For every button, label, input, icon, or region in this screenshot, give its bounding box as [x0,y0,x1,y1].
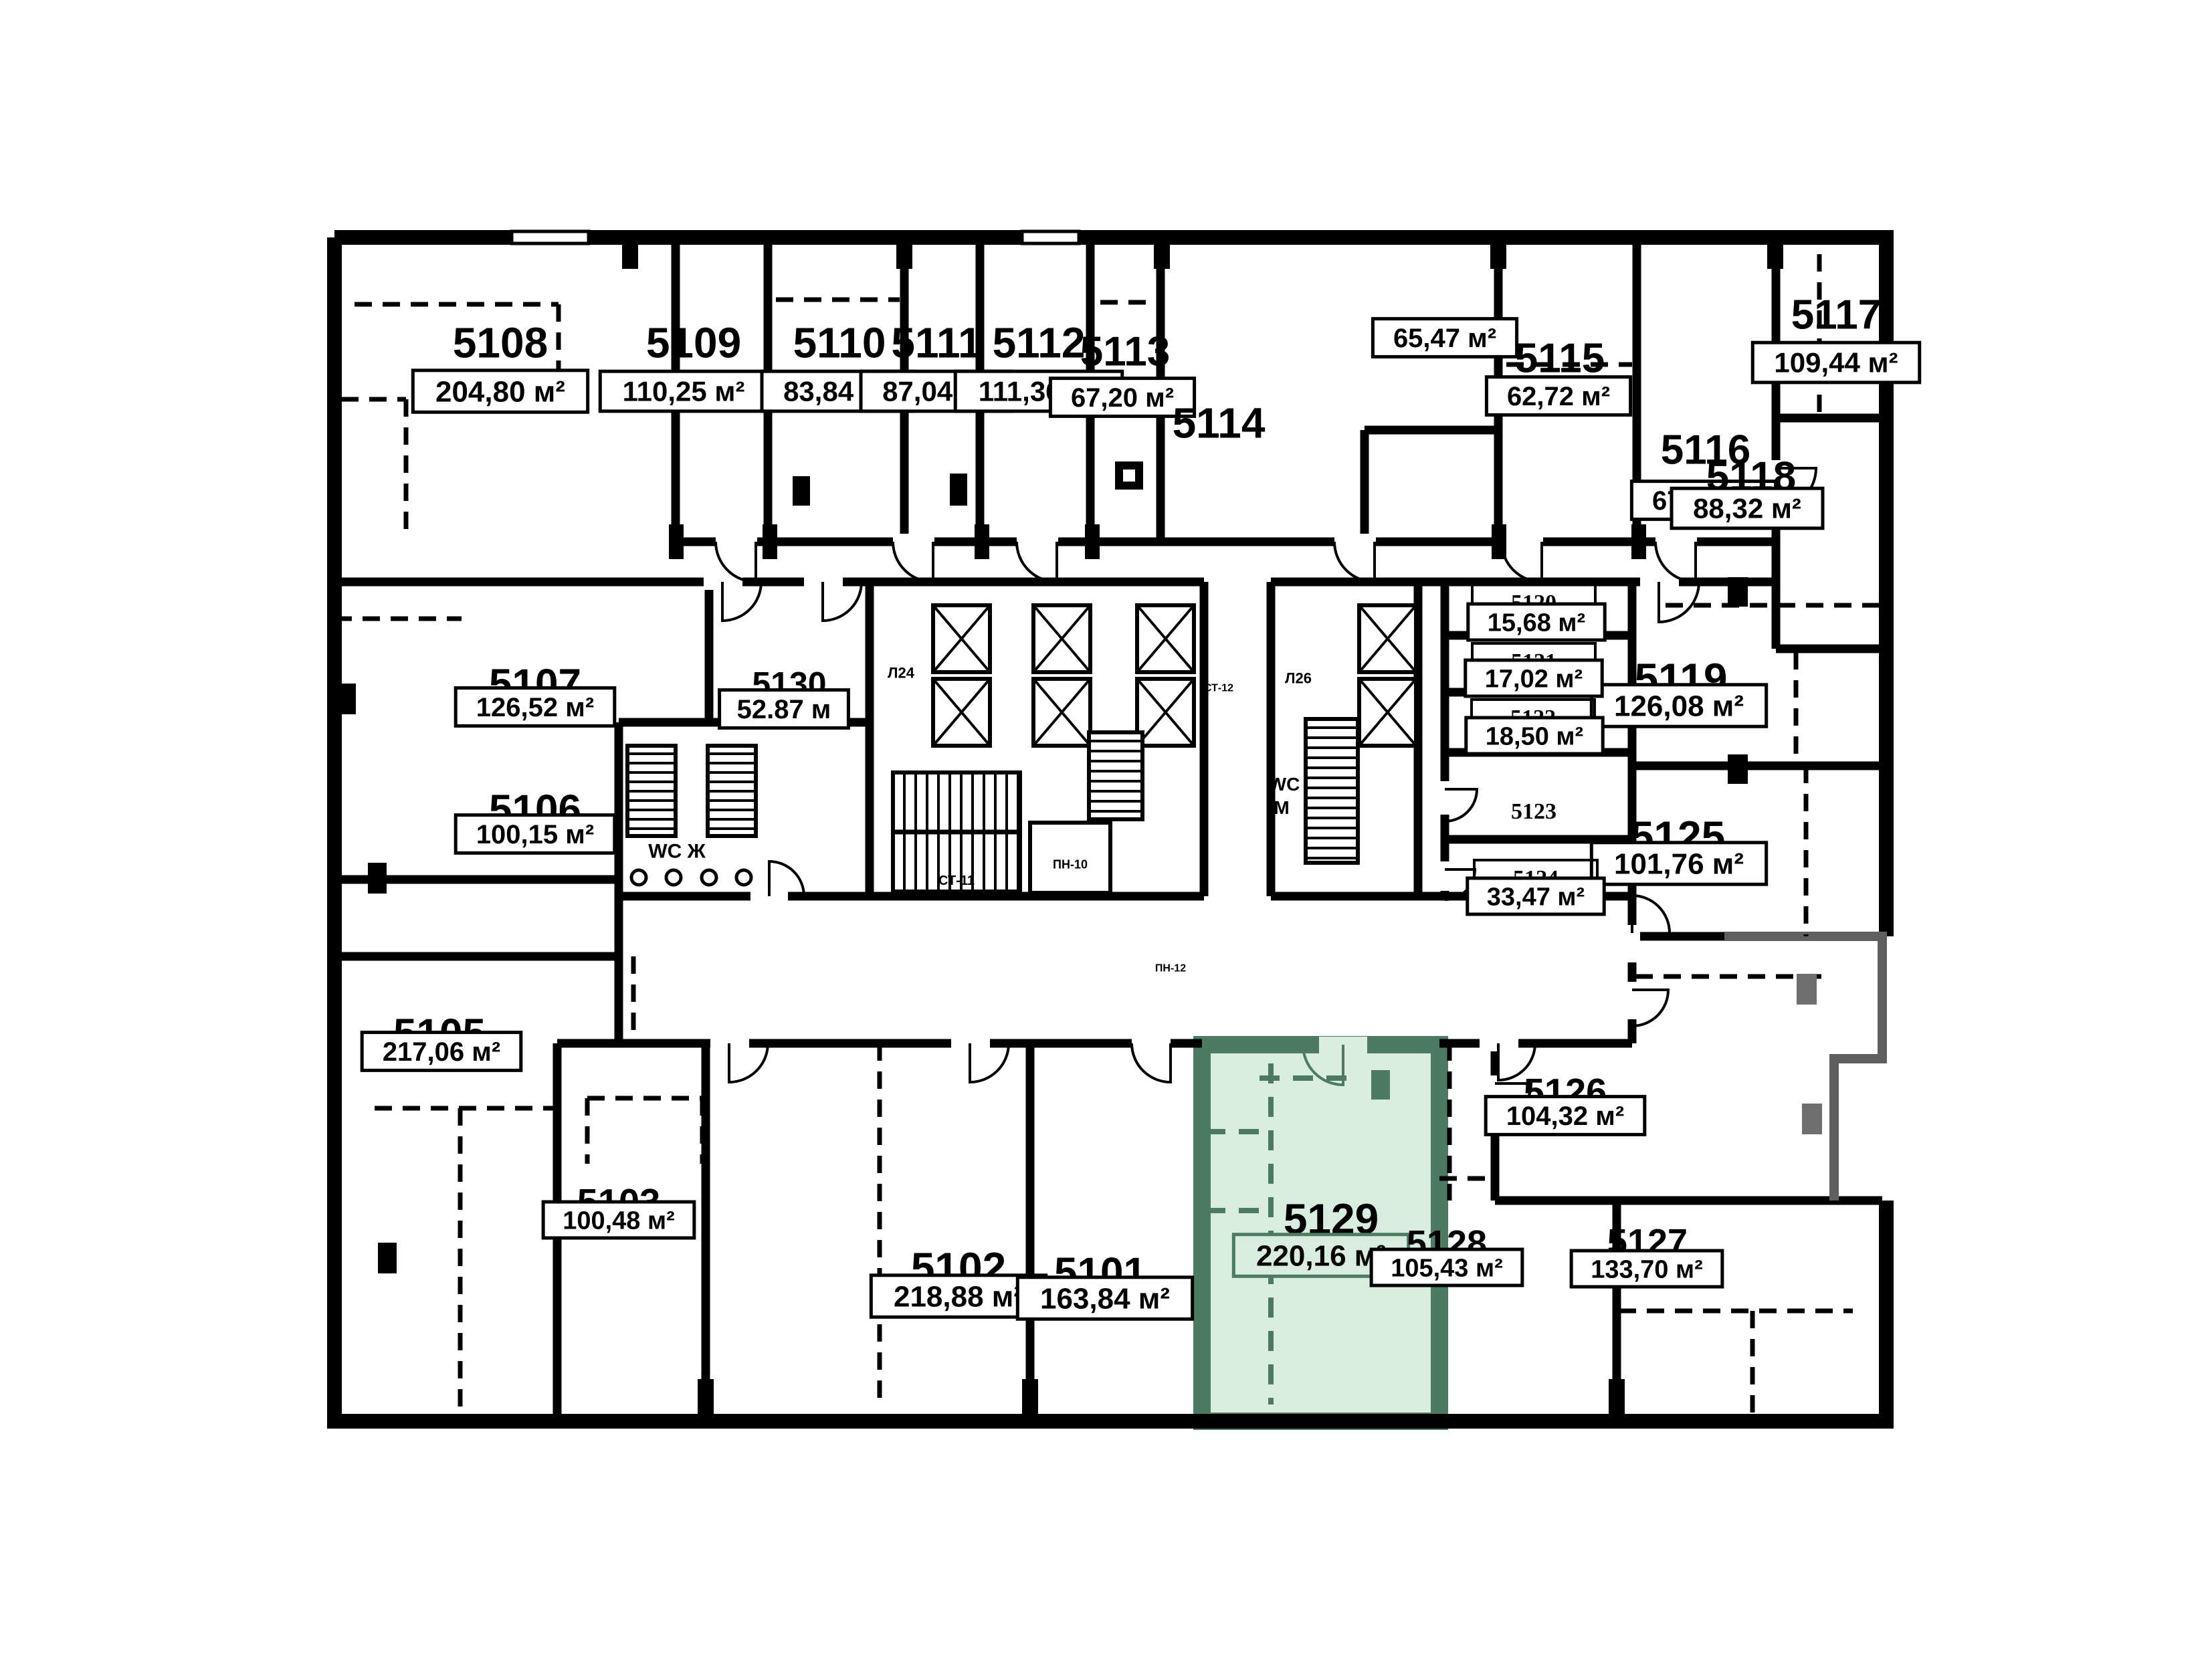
room-area: 126,52 м² [476,693,594,722]
room-area: 133,70 м² [1591,1255,1703,1283]
room-area: 204,80 м² [435,375,565,408]
room-area: 110,25 м² [623,376,745,407]
elevator-shaft-icon [1359,605,1416,672]
core-label-6: СТ-12 [1204,683,1233,694]
room-area: 218,88 м² [894,1280,1023,1313]
elevator-shaft-icon [1033,605,1090,672]
core-label-3: Л24 [888,665,915,682]
room-area: 163,84 м² [1040,1282,1170,1315]
door-opening [1437,861,1453,891]
window-mark [512,231,589,243]
door-opening [1334,534,1376,550]
room-area: 67,20 м² [1071,383,1174,413]
room-number: 5113 [1080,329,1171,375]
column-mark [378,1243,397,1273]
room-area: 217,06 м² [383,1037,500,1067]
column-mark [793,476,810,506]
core-label-7: ПН-10 [1053,857,1088,871]
elevator-shaft-icon [933,605,990,672]
wc-zh-stalls-icon [708,746,756,836]
column-mark [1371,1070,1390,1100]
core-label-1: WC [1269,774,1300,795]
door-opening [893,534,934,550]
door-opening [1624,982,1640,1019]
core-label-8: ПН-12 [1155,963,1186,974]
room-area: 100,15 м² [476,820,594,849]
door-opening [1017,534,1058,550]
column-mark [975,524,989,559]
room-number: 5123 [1511,799,1556,824]
core-label-4: Л26 [1285,670,1312,687]
room-area: 65,47 м² [1393,324,1496,353]
vent-icon [1123,470,1135,482]
door-opening [1437,781,1453,815]
column-mark [1631,524,1646,559]
room-area: 15,68 м² [1488,609,1585,637]
core-label-5: СТ-11 [938,873,975,888]
door-opening [1132,1035,1171,1051]
door-opening [716,534,757,550]
room-area: 18,50 м² [1486,722,1583,750]
door-opening [1655,534,1697,550]
door-opening [1502,534,1543,550]
room-area: 100,48 м² [563,1207,675,1235]
column-mark [1022,1379,1038,1421]
column-mark [1767,241,1783,269]
vent-icon [1797,974,1817,1005]
room-5123[interactable]: 5123 [1511,799,1556,824]
room-area: 88,32 м² [1693,493,1801,524]
core-label-0: WC Ж [648,841,706,863]
column-mark [622,241,638,269]
column-mark [669,524,684,559]
column-mark [1728,577,1748,607]
column-mark [368,863,387,894]
room-number: 5117 [1791,292,1882,338]
column-mark [698,1379,714,1421]
room-area: 101,76 м² [1614,847,1744,880]
column-mark [1085,524,1100,559]
column-mark [1728,754,1748,784]
elevator-shaft-icon [1359,679,1416,746]
room-number: 5109 [646,318,741,367]
column-mark [1609,1379,1625,1421]
elevator-shaft-icon [1033,679,1090,746]
room-area: 104,32 м² [1506,1102,1624,1131]
elevator-shaft-icon [1137,679,1194,746]
column-mark [1154,241,1170,269]
room-number: 5108 [453,318,548,367]
core-label-2: М [1274,797,1289,818]
column-mark [896,241,912,269]
wc-zh-stalls-icon [627,746,676,836]
room-area: 33,47 м² [1487,883,1585,911]
room-area: 109,44 м² [1774,347,1898,379]
room-area: 126,08 м² [1614,690,1744,722]
column-mark [763,524,777,559]
floor-plan-page: 5108204,80 м²5109110,25 м²511083,84 м²51… [0,0,2212,1659]
window-mark [1022,231,1079,243]
wc-m-stalls-icon [1306,719,1358,863]
room-area: 17,02 м² [1485,665,1583,693]
room-number: 5110 [793,318,886,367]
elevator-shaft-icon [1137,605,1194,672]
column-mark [334,684,356,714]
floor-plan-canvas: 5108204,80 м²5109110,25 м²511083,84 м²51… [0,0,2212,1659]
elevator-shaft-icon [933,679,990,746]
room-area: 52.87 м [737,695,831,724]
room-number: 5112 [993,318,1086,367]
room-number: 5115 [1515,336,1605,382]
room-number: 5111 [891,318,981,367]
room-area: 105,43 м² [1391,1254,1503,1282]
column-mark [1490,241,1506,269]
staircase-icon [1089,732,1142,819]
room-number: 5114 [1173,399,1266,447]
vent-icon [1802,1104,1822,1134]
room-area: 62,72 м² [1507,382,1610,411]
room-area: 220,16 м² [1256,1239,1386,1272]
column-mark [950,474,967,506]
